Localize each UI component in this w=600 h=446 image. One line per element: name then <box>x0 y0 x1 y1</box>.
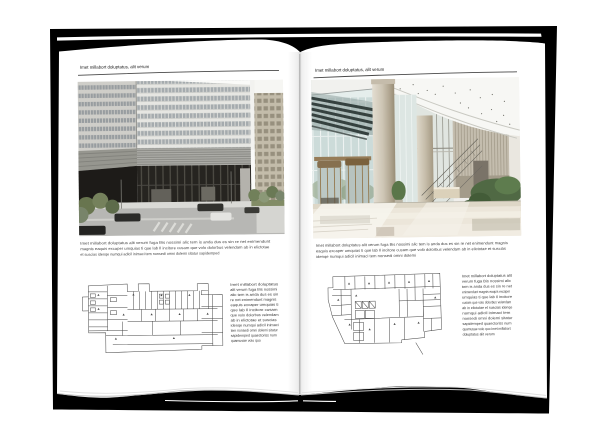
svg-text:umquias ti que lab Il incitore: umquias ti que lab Il incitore <box>462 295 512 300</box>
svg-text:doluptatus alit verum: doluptatus alit verum <box>463 332 495 336</box>
svg-text:alit verum fuga Bis nossimi: alit verum fuga Bis nossimi <box>230 287 277 291</box>
svg-text:alic tem is anda dus es sin: alic tem is anda dus es sin <box>230 293 278 298</box>
svg-text:cusam que volo dolorbus velend: cusam que volo dolorbus velendam <box>462 300 511 305</box>
svg-text:nonsedi omni dolemi sitatur: nonsedi omni dolemi sitatur <box>462 316 513 321</box>
svg-text:tem nonsedi omni dolemi sitatu: tem nonsedi omni dolemi sitatur <box>231 328 279 332</box>
svg-text:eaquis excaper umquias ti: eaquis excaper umquias ti <box>230 303 278 308</box>
svg-text:sapidemped quaectoriss num: sapidemped quaectoriss num <box>462 321 511 326</box>
svg-text:numqui adicil inimaci tem: numqui adicil inimaci tem <box>462 311 510 316</box>
svg-text:que volo dolorbus velendam: que volo dolorbus velendam <box>231 313 279 318</box>
svg-text:tem is anda dus es sin re net: tem is anda dus es sin re net <box>462 284 512 289</box>
svg-text:re net enimendunt magnis: re net enimendunt magnis <box>230 298 276 302</box>
svg-text:que lab Il incitore cusam: que lab Il incitore cusam <box>230 308 277 312</box>
svg-text:verum fuga Bis nossimi alic: verum fuga Bis nossimi alic <box>462 279 511 284</box>
svg-text:sapidemped quaectoriss num: sapidemped quaectoriss num <box>231 333 277 337</box>
svg-text:ab in elictotae et suscias: ab in elictotae et suscias <box>231 318 277 322</box>
svg-text:quamusae volo quo: quamusae volo quo <box>231 339 261 343</box>
svg-text:Imet millabort doluptatus alit: Imet millabort doluptatus alit <box>462 274 512 279</box>
svg-text:enimendunt magnis eaquis excap: enimendunt magnis eaquis excaper <box>462 290 511 295</box>
svg-text:quamusae volo quo Imet millabo: quamusae volo quo Imet millabort <box>463 327 511 332</box>
svg-text:ab in elictotae et suscias ide: ab in elictotae et suscias idenqe <box>462 305 512 310</box>
svg-text:Imet millabort doluptatus, ali: Imet millabort doluptatus, alit verum <box>315 67 385 73</box>
svg-text:Imet millabort doluptatus: Imet millabort doluptatus <box>230 282 278 287</box>
svg-text:Imet millabort doluptatus, ali: Imet millabort doluptatus, alit verum <box>80 64 150 70</box>
svg-text:idenqe numqui adicil inimaci: idenqe numqui adicil inimaci <box>231 323 279 328</box>
